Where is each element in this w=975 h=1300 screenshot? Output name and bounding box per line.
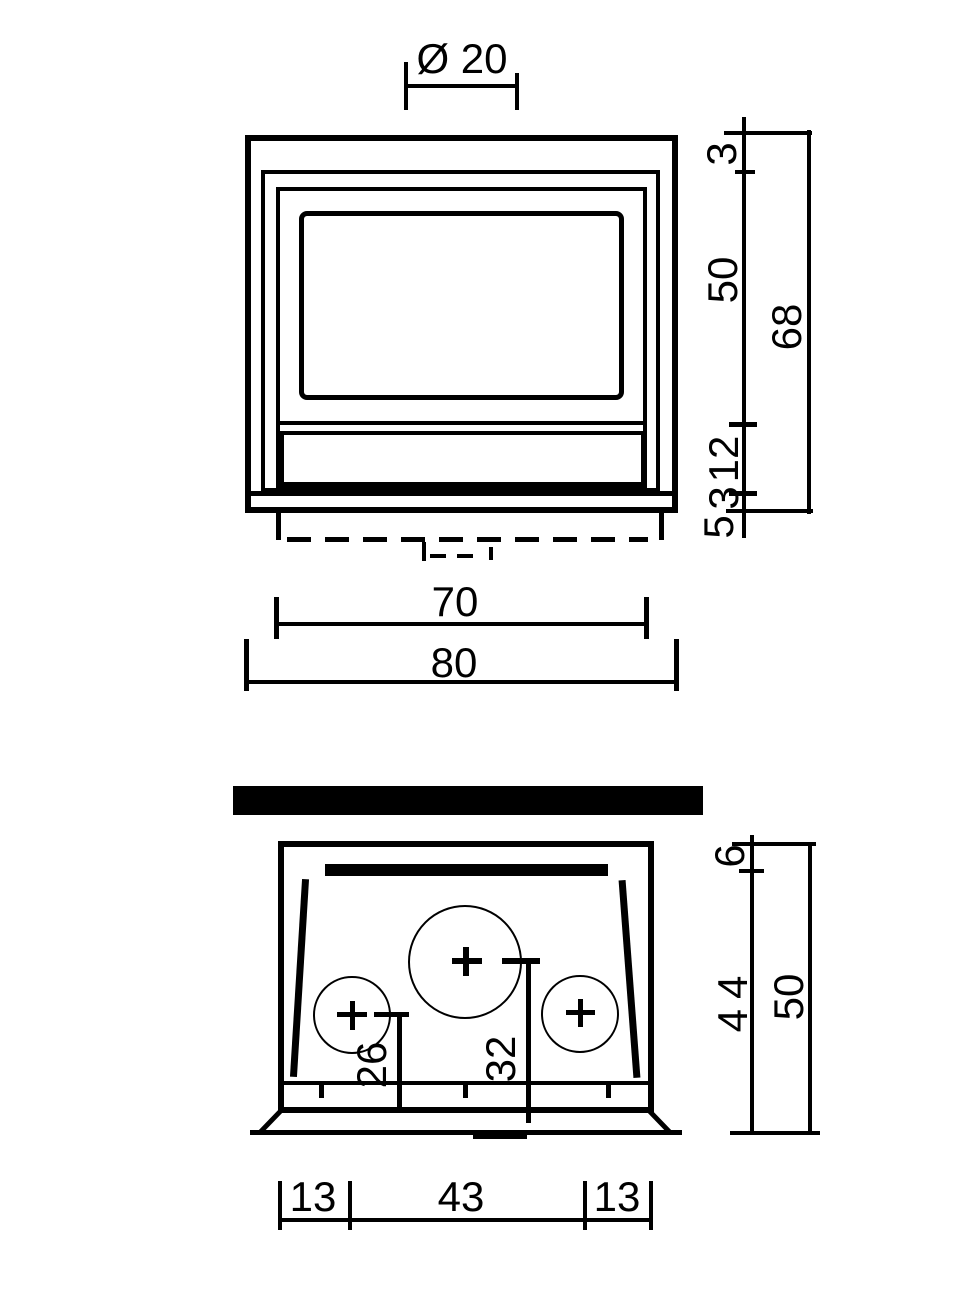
pv-dim-width-tick-2 — [348, 1181, 352, 1230]
fv-dim-diameter-tick-right — [515, 73, 519, 110]
pv-dim-32-line — [526, 961, 531, 1123]
fv-dim-height-tick-50 — [729, 422, 757, 427]
fv-lower-panel — [280, 431, 645, 486]
pv-center-cross-v — [463, 947, 469, 976]
pv-dim-label-back-inset: 6 — [709, 844, 751, 867]
pv-left-cross-v — [350, 1001, 355, 1030]
pv-dim-depth-tick-bottom — [730, 1131, 820, 1135]
fv-dim-diameter-tick-left — [404, 62, 408, 110]
pv-foot-tick-right — [606, 1083, 611, 1098]
fv-dim-diameter-label: Ø 20 — [416, 38, 507, 80]
fv-dim-label-overall-width: 80 — [431, 642, 478, 684]
pv-dim-width-tick-1 — [278, 1181, 282, 1230]
pv-wall-bar — [233, 786, 703, 815]
fv-plinth-notch-bottom — [430, 554, 482, 558]
pv-dim-label-center-offset: 32 — [480, 1036, 522, 1083]
pv-dim-label-inner-depth: 44 — [712, 966, 754, 1033]
fv-dim-width80-tick-right — [674, 639, 679, 691]
pv-dim-label-center-width: 43 — [438, 1176, 485, 1218]
fv-dim-label-base-height: 3 — [703, 486, 745, 509]
pv-dim-label-left-width: 13 — [290, 1176, 337, 1218]
pv-back-strip — [325, 864, 608, 876]
fv-plinth-notch-right — [489, 547, 493, 560]
fv-dim-diameter-line — [405, 84, 518, 88]
pv-dim-label-left-offset: 26 — [351, 1042, 393, 1089]
pv-foot-tick-center — [463, 1083, 468, 1098]
pv-dim-depth-tick-6 — [739, 869, 764, 873]
fv-dim-height-tick-3 — [735, 170, 755, 174]
pv-dim-label-right-width: 13 — [594, 1176, 641, 1218]
fv-dim-label-panel-height: 12 — [703, 436, 745, 483]
pv-dim-label-total-depth: 50 — [768, 974, 810, 1021]
fv-plinth-left-line — [276, 513, 281, 540]
pv-dim-26-line — [397, 1014, 402, 1111]
fv-plinth-right-line — [659, 513, 664, 540]
pv-dim-32-tick — [502, 958, 540, 964]
fv-glass-window — [299, 211, 624, 400]
pv-front-baseline — [250, 1130, 682, 1135]
pv-right-cross-v — [578, 999, 583, 1027]
fv-rail-line — [280, 421, 644, 425]
fv-dim-label-plinth-height: 5 — [698, 515, 740, 538]
fv-plinth-notch-left — [422, 542, 426, 561]
fv-dim-label-window-height: 50 — [702, 257, 744, 304]
fv-plinth-hidden-line — [287, 537, 648, 542]
pv-baseline-step — [473, 1130, 527, 1139]
fv-dim-label-top-inset: 3 — [701, 142, 743, 165]
pv-dim-width-tick-4 — [649, 1181, 653, 1230]
fv-dim-width70-tick-right — [644, 597, 649, 639]
fv-dim-width80-tick-left — [244, 639, 249, 691]
fv-dim-label-total-height: 68 — [766, 304, 808, 351]
pv-dim-26-tick — [374, 1012, 409, 1017]
fv-dim-label-inner-width: 70 — [432, 581, 479, 623]
pv-foot-tick-left — [319, 1083, 324, 1098]
technical-drawing-canvas: Ø 20 3 50 68 12 3 5 70 80 — [0, 0, 975, 1300]
fv-dim-height-tick-top — [724, 131, 812, 135]
pv-dim-width-tick-3 — [583, 1181, 587, 1230]
fv-dim-width70-tick-left — [274, 597, 279, 639]
fv-base-line — [245, 491, 678, 496]
